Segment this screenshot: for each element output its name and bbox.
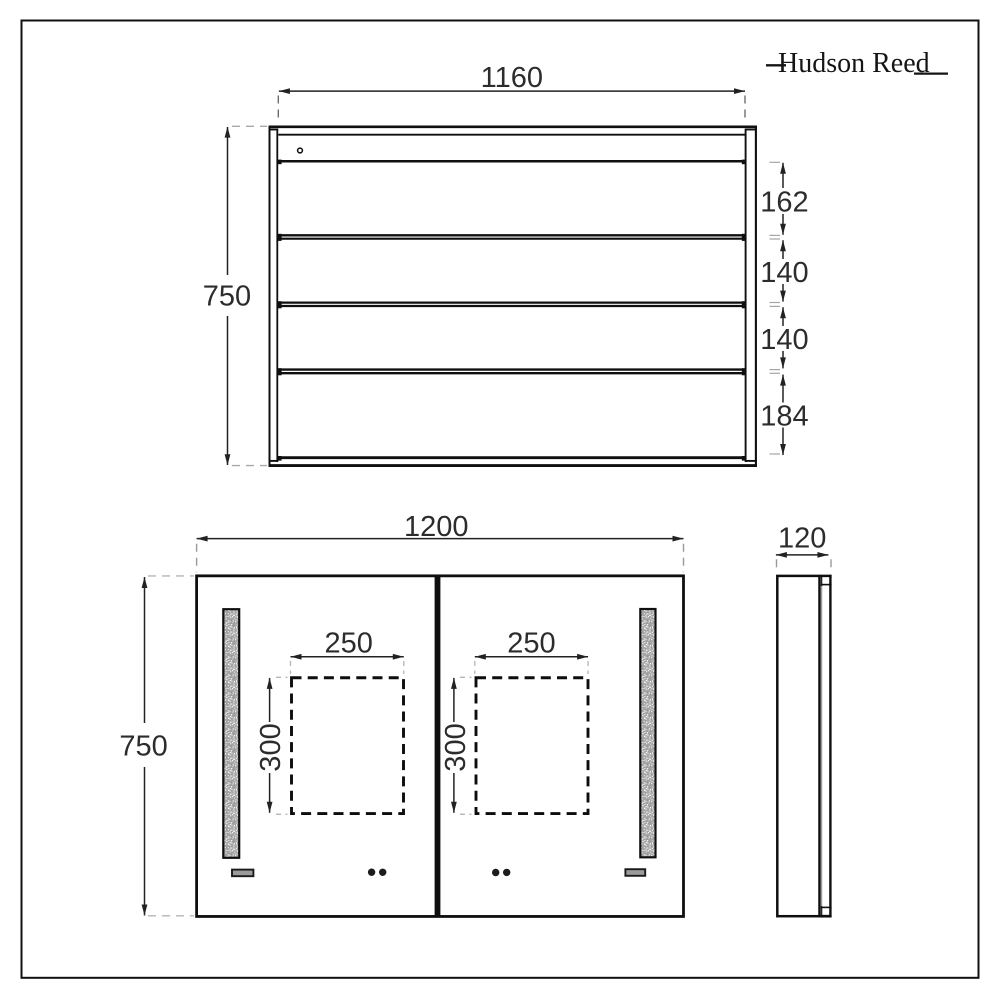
- svg-text:140: 140: [760, 324, 808, 356]
- svg-text:250: 250: [325, 628, 373, 660]
- svg-text:1200: 1200: [404, 511, 469, 543]
- svg-text:250: 250: [507, 628, 555, 660]
- svg-text:750: 750: [203, 281, 251, 313]
- svg-text:300: 300: [255, 723, 287, 771]
- svg-text:300: 300: [440, 723, 472, 771]
- svg-text:120: 120: [778, 522, 826, 554]
- svg-text:162: 162: [760, 186, 808, 218]
- svg-text:1160: 1160: [481, 62, 543, 94]
- svg-text:Hudson Reed: Hudson Reed: [778, 48, 930, 79]
- svg-text:140: 140: [760, 257, 808, 289]
- svg-text:750: 750: [119, 731, 167, 763]
- svg-text:184: 184: [760, 401, 808, 433]
